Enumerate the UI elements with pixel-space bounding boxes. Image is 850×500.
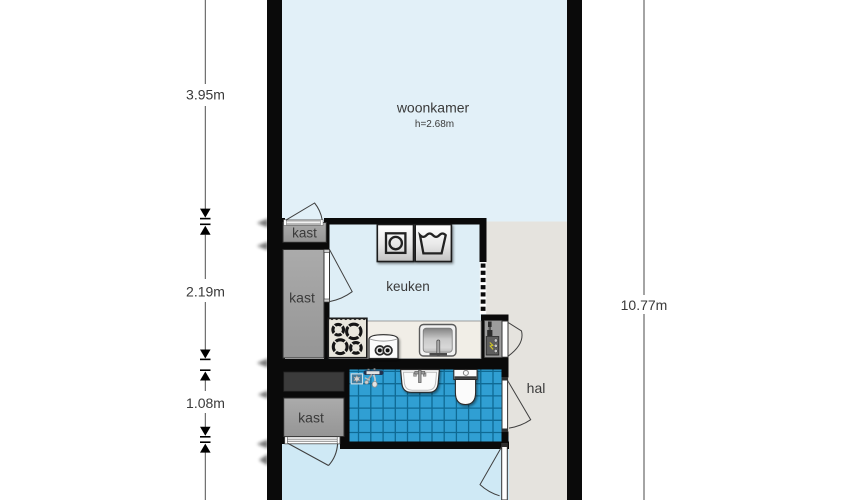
svg-text:woonkamer: woonkamer <box>396 100 470 116</box>
svg-text:1.08m: 1.08m <box>186 395 225 411</box>
svg-text:kast: kast <box>289 290 315 306</box>
svg-text:h=2.68m: h=2.68m <box>415 119 454 130</box>
svg-text:hal: hal <box>527 380 546 396</box>
svg-text:kast: kast <box>292 226 317 241</box>
svg-text:3.95m: 3.95m <box>186 87 225 103</box>
svg-text:2.19m: 2.19m <box>186 284 225 300</box>
svg-text:10.77m: 10.77m <box>621 297 668 313</box>
svg-text:keuken: keuken <box>386 279 430 294</box>
svg-text:kast: kast <box>298 410 324 426</box>
